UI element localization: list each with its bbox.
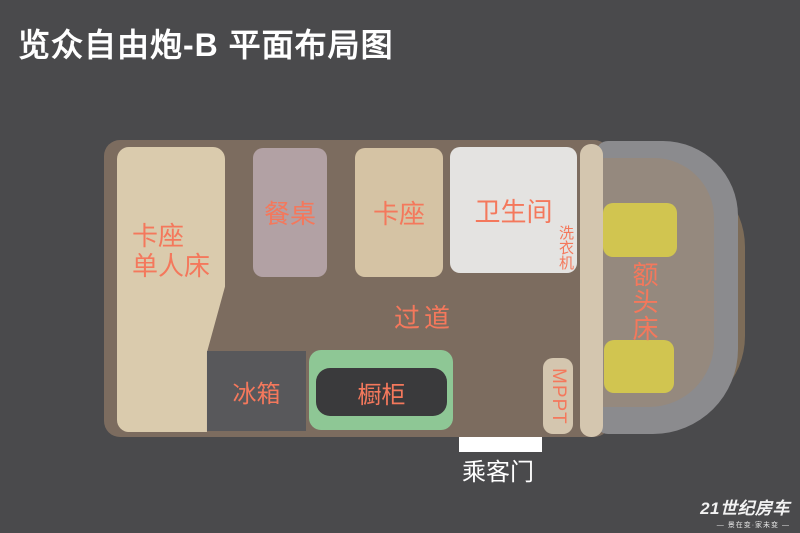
cabinet-label: 橱柜 xyxy=(358,375,406,410)
page-title: 览众自由炮-B 平面布局图 xyxy=(18,20,394,66)
passenger-door-opening xyxy=(459,437,542,452)
bathroom-label: 卫生间 xyxy=(474,192,552,229)
area-bathroom: 卫生间 洗衣机 xyxy=(450,147,577,273)
area-mppt-unit: MPPT xyxy=(543,358,573,434)
cab-seat-top xyxy=(603,203,677,257)
booth-seat-label: 卡座 xyxy=(373,194,425,231)
passenger-door-label: 乘客门 xyxy=(462,452,534,487)
brand-tagline: — 景在变·家未变 — xyxy=(680,520,790,530)
mppt-label: MPPT xyxy=(547,368,569,425)
brand-logo-text: 21世纪房车 xyxy=(680,494,790,519)
dining-table-label: 餐桌 xyxy=(264,194,316,231)
kitchen-cabinet-counter: 橱柜 xyxy=(316,368,447,416)
booth-single-bed-label: 卡座 单人床 xyxy=(132,221,210,281)
washing-machine-label: 洗衣机 xyxy=(557,225,574,270)
brand-watermark: 21世纪房车 — 景在变·家未变 — xyxy=(680,494,790,530)
cab-seat-bottom xyxy=(604,340,674,393)
area-fridge: 冰箱 xyxy=(207,351,306,431)
fridge-label: 冰箱 xyxy=(233,374,281,409)
area-dining-table: 餐桌 xyxy=(253,148,327,277)
area-booth-seat: 卡座 xyxy=(355,148,443,277)
aisle-label: 过道 xyxy=(394,298,454,335)
cab-over-bed-label: 额头床 xyxy=(630,261,658,342)
cab-partition-wall xyxy=(580,144,603,437)
area-kitchen-cabinet: 橱柜 xyxy=(309,350,453,430)
